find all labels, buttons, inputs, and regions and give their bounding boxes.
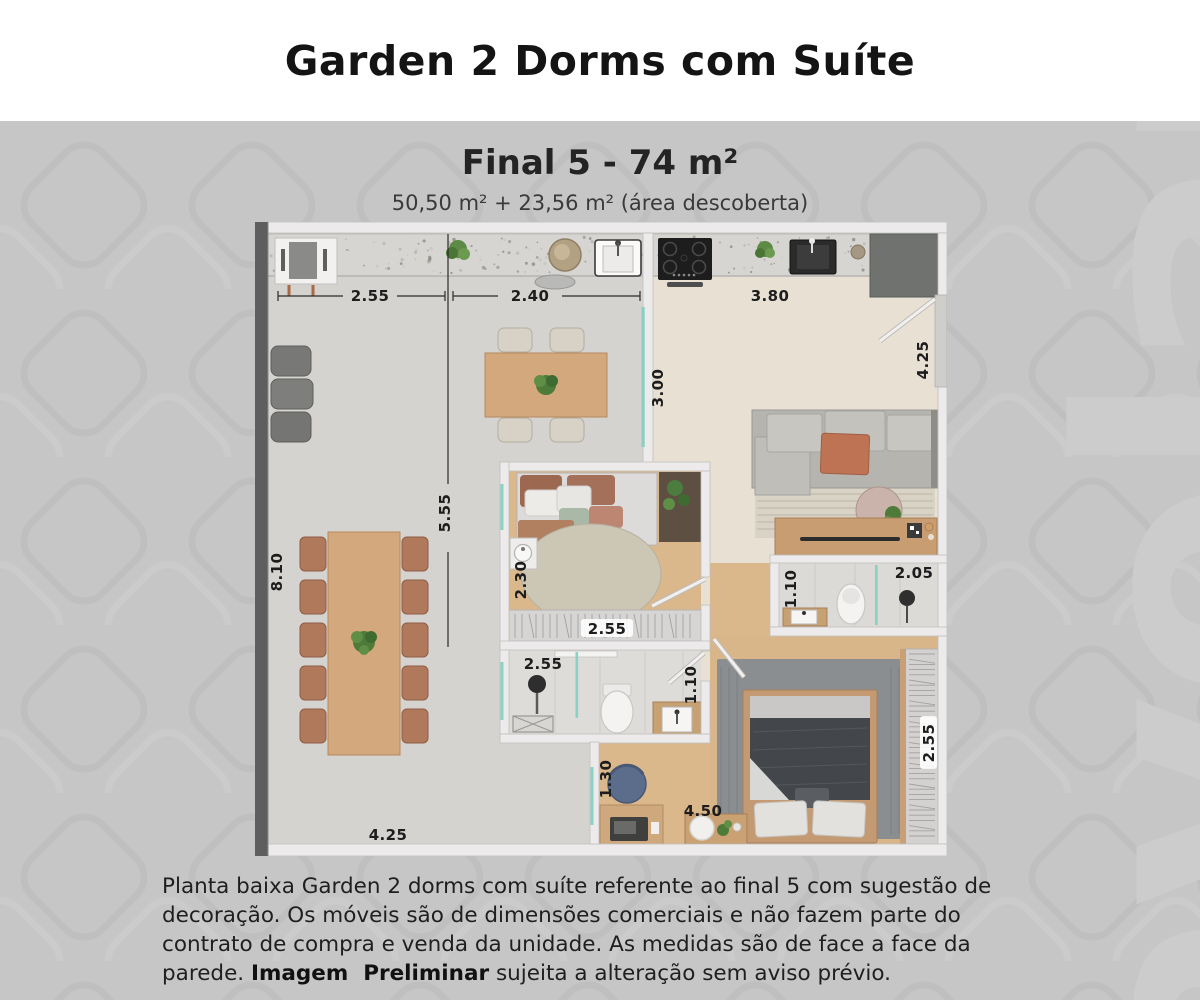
- basin-black: [528, 675, 546, 693]
- stone-bowl: [549, 239, 581, 271]
- vanity-1: [653, 702, 701, 735]
- dim-suite-width: 4.50: [684, 802, 723, 820]
- bed-suite: [743, 690, 877, 843]
- cooktop: [658, 238, 712, 287]
- dim-suite-wardrobe: 2.55: [920, 724, 938, 763]
- dim-top-mid: 2.40: [511, 287, 550, 305]
- watermark-text: avelar: [1038, 121, 1200, 1000]
- suite-bedroom: [717, 649, 938, 844]
- rug-bedroom-1: [521, 524, 661, 624]
- dim-suite-bath-width: 2.05: [895, 564, 934, 582]
- poufs: [271, 346, 313, 442]
- dim-bottom-width: 4.25: [369, 826, 408, 844]
- dim-bath1-width: 2.55: [524, 655, 563, 673]
- tv-sideboard: [775, 518, 937, 555]
- dim-top-left: 2.55: [351, 287, 390, 305]
- kitchen-sink-left: [595, 240, 641, 276]
- disclaimer-after: sujeita a alteração sem aviso prévio.: [489, 961, 891, 986]
- disclaimer-text: Planta baixa Garden 2 dorms com suíte re…: [162, 872, 1030, 988]
- dim-garden-mid: 5.55: [436, 494, 454, 533]
- kitchen-sink-right: [790, 238, 836, 274]
- dim-garden-height: 8.10: [268, 553, 286, 592]
- shower-drain-1: [513, 716, 553, 732]
- disclaimer-bold: Imagem Preliminar: [251, 961, 489, 986]
- dim-desk-nook: 1.30: [597, 760, 615, 799]
- desk: [600, 805, 663, 846]
- dim-bed1-wardrobe: 2.55: [588, 620, 627, 638]
- sofa: [752, 410, 939, 495]
- dim-bed1-depth: 2.30: [512, 561, 530, 600]
- entry-jamb: [935, 295, 947, 387]
- dim-entry-door: 4.25: [914, 341, 932, 380]
- dim-bath1-depth: 1.10: [682, 666, 700, 705]
- toilet-2: [837, 584, 865, 624]
- dining-table-large: [300, 532, 428, 755]
- boundary-wall-dark: [255, 222, 268, 856]
- stone-decor: [851, 245, 865, 259]
- floor-plan-svg: 2.55 2.40 3.80 3.00 4.25 5.55 8.10 2.30 …: [255, 222, 947, 856]
- mirror-1: [555, 651, 617, 657]
- page-title: Garden 2 Dorms com Suíte: [285, 37, 915, 85]
- area-line: 50,50 m² + 23,56 m² (área descoberta): [0, 191, 1200, 215]
- page-header: Garden 2 Dorms com Suíte: [0, 0, 1200, 121]
- unit-subtitle: Final 5 - 74 m²: [0, 143, 1200, 183]
- floor-plan: 2.55 2.40 3.80 3.00 4.25 5.55 8.10 2.30 …: [255, 222, 947, 856]
- dim-suite-bath-depth: 1.10: [782, 570, 800, 609]
- brochure-page: Garden 2 Dorms com Suíte avelar Final 5 …: [0, 0, 1200, 1000]
- plan-canvas: avelar Final 5 - 74 m² 50,50 m² + 23,56 …: [0, 121, 1200, 1000]
- kitchen-cabinet-dark: [870, 234, 938, 297]
- dim-top-right: 3.80: [751, 287, 790, 305]
- vanity-2: [783, 608, 827, 626]
- dim-living-depth: 3.00: [649, 369, 667, 408]
- toilet-1: [601, 684, 633, 733]
- hall-floor: [710, 563, 770, 638]
